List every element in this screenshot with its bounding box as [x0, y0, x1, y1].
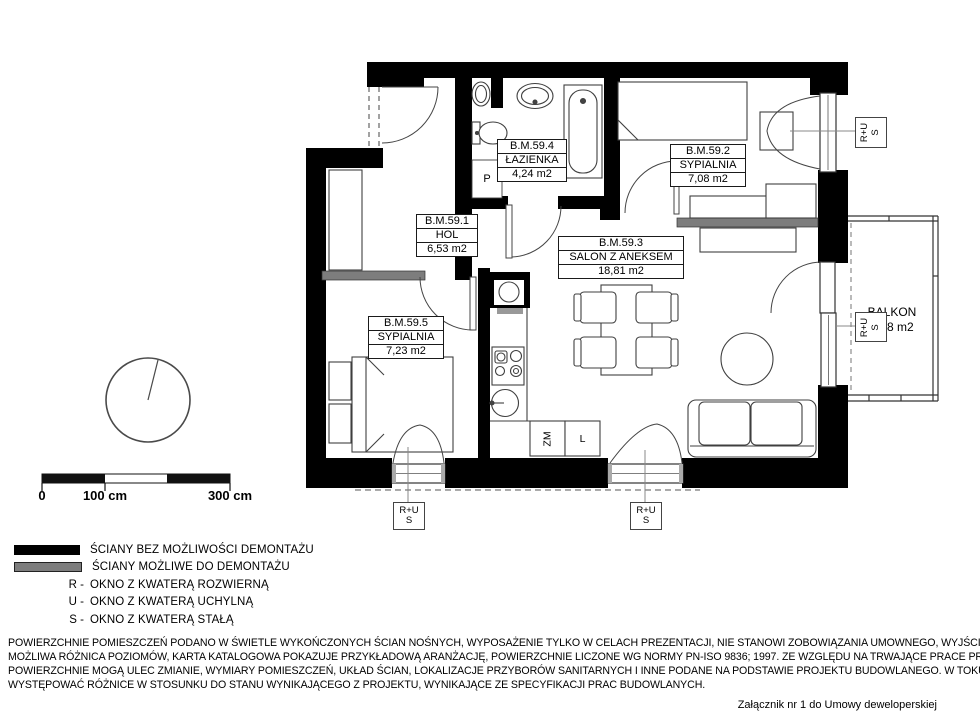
installation-shaft [488, 272, 530, 314]
disclaimer-line: MOŻLIWA RÓŻNICA POZIOMÓW, KARTA KATALOGO… [8, 651, 974, 665]
room-area: 4,24 m2 [498, 168, 566, 181]
scale-tick-300: 300 cm [202, 488, 258, 503]
window-tag-line2: S [870, 129, 881, 135]
room-id: B.M.59.3 [559, 237, 683, 251]
room-label-salon: B.M.59.3 SALON Z ANEKSEM 18,81 m2 [558, 236, 684, 279]
legend: ŚCIANY BEZ MOŻLIWOŚCI DEMONTAŻU ŚCIANY M… [14, 541, 314, 629]
window-tag-balcony: R+U S [855, 312, 887, 342]
nightstand [329, 404, 351, 443]
floor-plan-page: B.M.59.1 HOL 6,53 m2 B.M.59.2 SYPIALNIA … [0, 0, 980, 721]
legend-item-window-s: S - OKNO Z KWATERĄ STAŁĄ [14, 611, 314, 629]
bedroom5-door [470, 277, 476, 330]
room-name: HOL [417, 229, 477, 243]
coffee-table [721, 333, 773, 385]
legend-item-window-u: U - OKNO Z KWATERĄ UCHYLNĄ [14, 594, 314, 612]
window-tag-line2: S [870, 324, 881, 330]
wardrobe [329, 170, 362, 270]
sideboard [700, 228, 796, 252]
room-name: SYPIALNIA [671, 159, 745, 173]
disclaimer-line: WYSTĘPOWAĆ RÓŻNICE W STOSUNKU DO STANU W… [8, 679, 974, 693]
attachment-note: Załącznik nr 1 do Umowy deweloperskiej [577, 699, 937, 711]
dishwasher-label: ZM [530, 421, 565, 456]
room-name: ŁAZIENKA [498, 154, 566, 168]
window-tag-bedroom2: R+U S [855, 117, 887, 148]
room-area: 7,08 m2 [671, 173, 745, 186]
double-bed [352, 357, 453, 452]
balcony-door-swing [771, 262, 822, 313]
window-tag-bedroom5: R+U S [393, 502, 425, 530]
room-id: B.M.59.2 [671, 145, 745, 159]
room-area: 7,23 m2 [369, 345, 443, 358]
room-label-hol: B.M.59.1 HOL 6,53 m2 [416, 214, 478, 257]
bathroom-door [506, 205, 512, 258]
legend-item-removable-wall: ŚCIANY MOŻLIWE DO DEMONTAŻU [14, 559, 314, 577]
room-id: B.M.59.5 [369, 317, 443, 331]
scale-tick-0: 0 [36, 488, 48, 503]
balcony-door-frame [820, 262, 835, 313]
room-name: SALON Z ANEKSEM [559, 251, 683, 265]
window-swing-salon [610, 424, 682, 463]
window-tag-line2: S [643, 515, 649, 526]
room-area: 18,81 m2 [559, 265, 683, 278]
room-id: B.M.59.4 [498, 140, 566, 154]
nightstand [760, 112, 793, 150]
disclaimer-line: POWIERZCHNIE POMIESZCZEŃ PODANO W ŚWIETL… [8, 637, 974, 651]
room-id: B.M.59.1 [417, 215, 477, 229]
nightstand [329, 362, 351, 400]
window-tag-line2: S [406, 515, 412, 526]
room-label-bedroom2: B.M.59.2 SYPIALNIA 7,08 m2 [670, 144, 746, 187]
room-area: 6,53 m2 [417, 243, 477, 256]
room-name: SYPIALNIA [369, 331, 443, 345]
window-tag-line1: R+U [636, 505, 655, 516]
room-label-bedroom5: B.M.59.5 SYPIALNIA 7,23 m2 [368, 316, 444, 359]
legend-item-window-r: R - OKNO Z KWATERĄ ROZWIERNĄ [14, 576, 314, 594]
disclaimer-line: POWIERZCHNIE MOGĄ ULEC ZMIANIE, WYMIARY … [8, 665, 974, 679]
solid-wall-swatch [14, 545, 80, 555]
room-label-bathroom: B.M.59.4 ŁAZIENKA 4,24 m2 [497, 139, 567, 182]
north-arrow-icon [106, 358, 190, 442]
fridge-label: L [565, 421, 600, 456]
removable-wall-swatch [14, 562, 82, 572]
disclaimer-text: POWIERZCHNIE POMIESZCZEŃ PODANO W ŚWIETL… [8, 637, 974, 693]
scale-tick-100: 100 cm [77, 488, 133, 503]
window-tag-salon: R+U S [630, 502, 662, 530]
desk [690, 196, 768, 218]
legend-item-solid-wall: ŚCIANY BEZ MOŻLIWOŚCI DEMONTAŻU [14, 541, 314, 559]
single-bed [618, 82, 747, 140]
window-tag-line1: R+U [399, 505, 418, 516]
desk [766, 184, 816, 218]
